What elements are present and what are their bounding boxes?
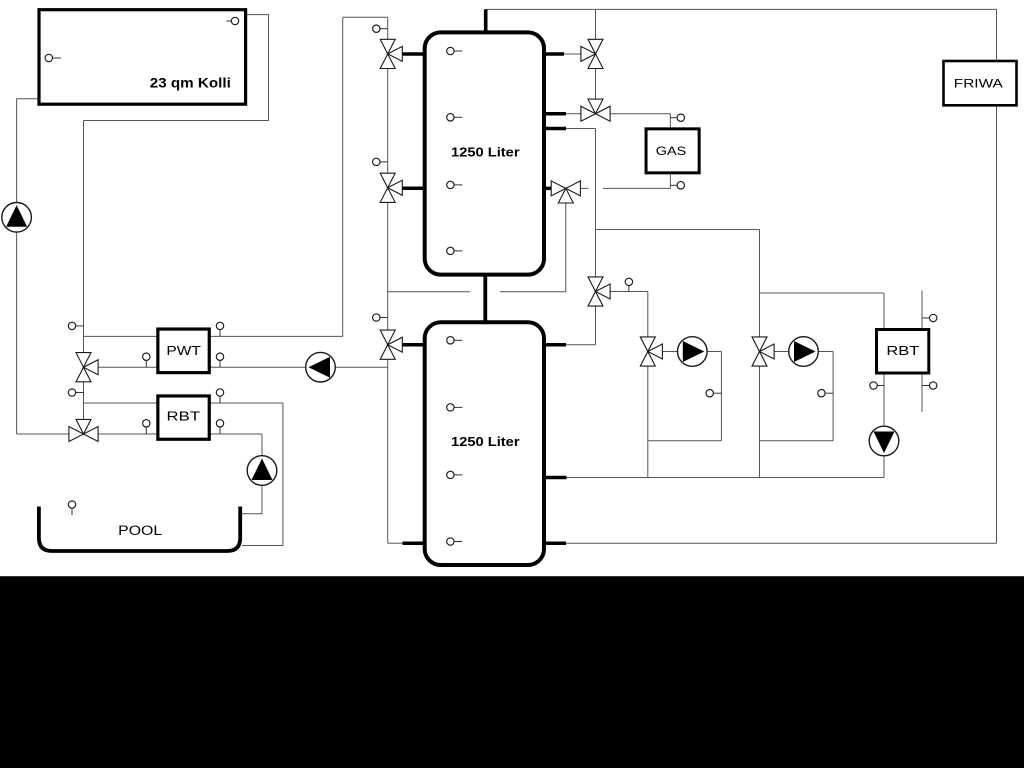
svg-text:POOL: POOL [118, 523, 163, 538]
svg-text:23 qm Kolli: 23 qm Kolli [150, 76, 231, 91]
svg-text:GAS: GAS [656, 144, 687, 158]
svg-text:RBT: RBT [886, 343, 919, 358]
svg-text:1250 Liter: 1250 Liter [451, 144, 520, 159]
svg-text:RBT: RBT [167, 409, 201, 424]
svg-text:PWT: PWT [166, 343, 201, 358]
svg-text:1250 Liter: 1250 Liter [451, 434, 520, 449]
svg-text:FRIWA: FRIWA [954, 76, 1003, 90]
